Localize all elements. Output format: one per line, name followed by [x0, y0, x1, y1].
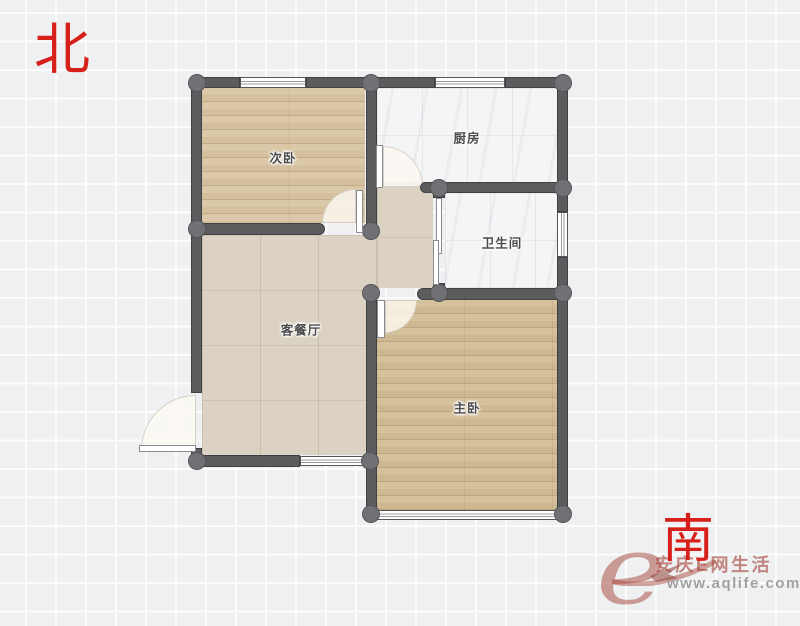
- compass-north-label: 北: [34, 20, 90, 82]
- wall-joint: [554, 74, 572, 92]
- wall-joint: [554, 284, 572, 302]
- compass-south-label: 南: [662, 512, 714, 569]
- room-label-living-dining: 客餐厅: [281, 320, 322, 339]
- floor-hallway: [377, 182, 433, 288]
- floorplan-page: { "compass": { "north_label": "北", "sout…: [0, 0, 800, 600]
- wall-joint: [430, 179, 448, 197]
- wall-joint: [188, 74, 206, 92]
- wall-joint: [361, 452, 379, 470]
- wall-joint: [188, 452, 206, 470]
- room-label-bathroom: 卫生间: [482, 233, 523, 252]
- room-label-master-bedroom: 主卧: [453, 398, 480, 417]
- wall-master-bedroom-left: [366, 288, 377, 520]
- wall-joint: [362, 505, 380, 523]
- bathroom-sliding-door-panel: [433, 240, 439, 285]
- wall-joint: [188, 220, 206, 238]
- entrance-door-swing: [141, 395, 196, 450]
- wall-joint: [362, 74, 380, 92]
- window-secondary-bedroom: [240, 77, 306, 88]
- window-kitchen: [435, 77, 505, 88]
- kitchen-door-panel: [376, 145, 383, 188]
- watermark-site-url: www.aqlife.com: [667, 575, 800, 592]
- wall-secondary-bedroom-bottom: [196, 223, 325, 235]
- wall-joint: [362, 222, 380, 240]
- master-bedroom-door-panel: [377, 300, 385, 338]
- window-living-room: [300, 456, 363, 466]
- secondary-bedroom-door-panel: [356, 190, 363, 233]
- floor-living-dining: [202, 235, 377, 455]
- wall-joint: [430, 284, 448, 302]
- room-label-kitchen: 厨房: [453, 128, 480, 147]
- window-master-bedroom: [377, 510, 557, 520]
- entrance-door-panel: [139, 445, 196, 452]
- window-bathroom: [557, 212, 568, 257]
- wall-joint: [554, 179, 572, 197]
- wall-joint: [554, 505, 572, 523]
- wall-living-bottom-segment: [196, 455, 300, 467]
- room-label-secondary-bedroom: 次卧: [269, 148, 296, 167]
